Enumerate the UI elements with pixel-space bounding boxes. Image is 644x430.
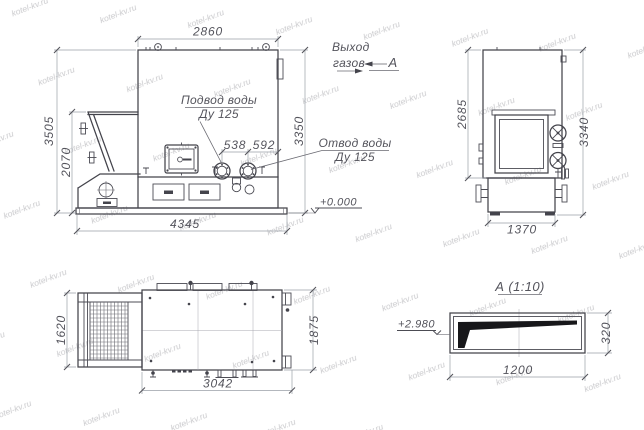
dim-320: 320 [599,322,613,344]
foot [545,212,555,216]
label-view-arrow: А [388,55,398,70]
dim-2070: 2070 [59,147,73,178]
dim-592: 592 [253,138,275,152]
dim-1370: 1370 [507,223,537,237]
section-title: А (1:10) [494,279,544,294]
label-level-2980: +2.980 [398,319,435,331]
bolt-icon [286,308,290,312]
label-water-outlet-1: Отвод воды [318,136,391,150]
dim-3340: 3340 [577,117,591,147]
bolt-icon [188,281,192,285]
dim-2685: 2685 [455,99,469,130]
drawing-sheet: kotel-kv.ru kotel-kv.ru [0,0,644,430]
label-water-inlet-2: Ду 125 [197,107,239,121]
label-water-outlet-2: Ду 125 [333,150,375,164]
dim-4345: 4345 [170,217,200,231]
dim-3505: 3505 [42,116,56,146]
foot [490,212,500,216]
boiler-drawing: kotel-kv.ru kotel-kv.ru [0,0,644,430]
dim-1200: 1200 [503,363,533,377]
dim-1620: 1620 [54,315,68,345]
bolt-icon [249,281,253,285]
label-level-zero: +0.000 [320,197,357,209]
label-gas-outlet-2: газов [333,56,365,70]
gas-outlet-label: Выход газов [332,40,370,74]
label-gas-outlet-1: Выход [332,40,370,54]
dim-3350: 3350 [292,116,306,146]
dim-538: 538 [224,138,246,152]
dim-2860: 2860 [192,25,223,39]
dim-1875: 1875 [307,315,321,345]
dim-3042: 3042 [203,377,233,391]
label-water-inlet-1: Подвод воды [181,93,257,107]
